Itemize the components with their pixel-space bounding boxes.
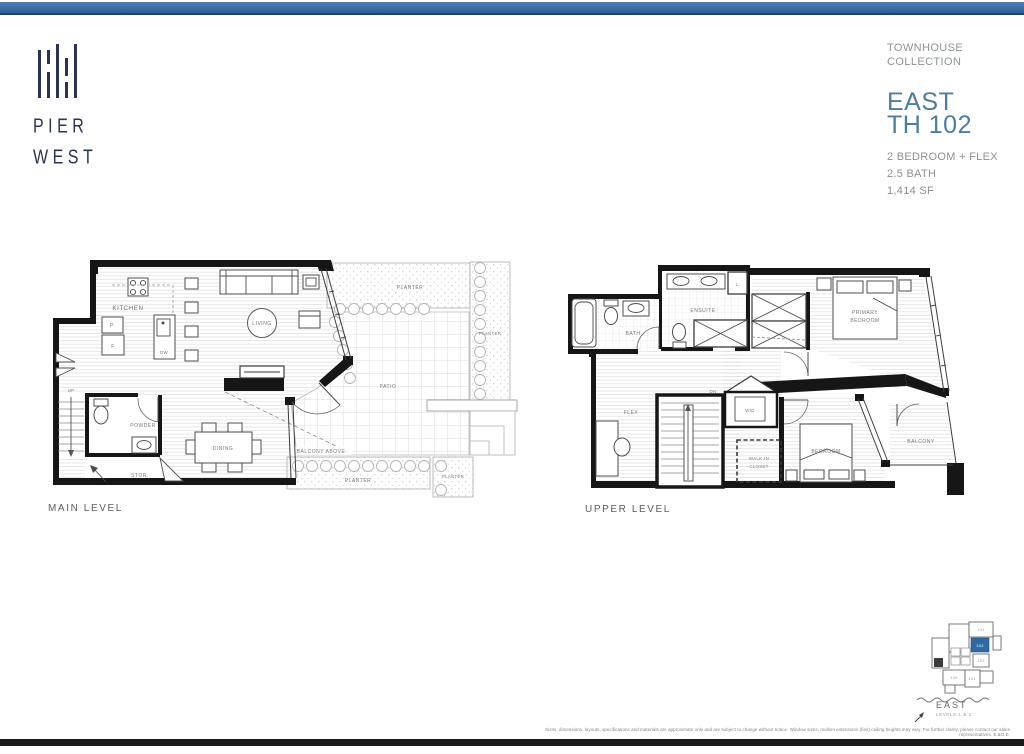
label-planter-right: PLANTER xyxy=(479,331,501,336)
label-dw: DW xyxy=(160,350,168,355)
label-balcony: BALCONY xyxy=(907,439,935,445)
north-arrow-icon xyxy=(915,712,924,722)
label-living: LIVING xyxy=(252,321,271,327)
label-bath: BATH xyxy=(626,331,641,337)
label-dn: DN xyxy=(710,389,717,394)
logo-text-pier: PIER xyxy=(33,116,88,139)
label-primary-line1: PRIMARY xyxy=(852,310,878,316)
plan-specs: 2 BEDROOM + FLEX 2.5 BATH 1,414 SF xyxy=(887,149,1017,200)
label-up: UP xyxy=(68,388,75,393)
label-kitchen: KITCHEN xyxy=(112,306,143,312)
collection-line2: COLLECTION xyxy=(887,55,1017,69)
logo-text-west: WEST xyxy=(33,147,97,170)
label-wic-line1: WALK-IN xyxy=(749,456,769,461)
label-bedroom: BEDROOM xyxy=(811,449,840,455)
upper-level-floorplan: BATH ENSUITE L PRIMARY BEDROOM FLEX DN W… xyxy=(563,256,975,514)
label-stor: STOR. xyxy=(131,473,149,479)
label-patio: PATIO xyxy=(380,384,397,390)
label-wic-line2: CLOSET xyxy=(749,464,768,469)
label-pantry: P xyxy=(110,323,114,329)
keyplan-unit-102: 102 xyxy=(976,643,984,648)
collection-title: TOWNHOUSE COLLECTION xyxy=(887,41,1017,69)
spec-bath: 2.5 BATH xyxy=(887,166,1017,183)
plan-header: TOWNHOUSE COLLECTION EAST TH 102 2 BEDRO… xyxy=(887,41,1017,200)
plan-name-line2: TH 102 xyxy=(887,114,1017,137)
label-linen: L xyxy=(736,282,739,287)
label-primary-line2: BEDROOM xyxy=(850,318,879,324)
spec-bedrooms: 2 BEDROOM + FLEX xyxy=(887,149,1017,166)
label-planter-bottom-right: PLANTER xyxy=(442,474,464,479)
main-level-title: MAIN LEVEL xyxy=(48,503,123,514)
keyplan-levels: LEVELS 1 & 2 xyxy=(936,712,972,717)
upper-level-title: UPPER LEVEL xyxy=(585,504,671,515)
label-fridge: F xyxy=(111,344,115,350)
spec-area: 1,414 SF xyxy=(887,183,1017,200)
keyplan-unit-104: 104 xyxy=(968,676,976,681)
keyplan-unit-103: 103 xyxy=(977,658,985,663)
label-planter-top: PLANTER xyxy=(397,285,424,291)
keyplan-unit-101: 101 xyxy=(977,627,985,632)
label-wd: W/D xyxy=(745,408,754,413)
keyplan-direction: EAST xyxy=(936,700,968,710)
main-level-floorplan: KITCHEN P F DW LIVING UP POWDER STOR. DI… xyxy=(44,256,536,520)
disclaimer-text: Sizes, dimensions, layouts, specificatio… xyxy=(518,727,1010,737)
keyplan: 101 102 103 105 104 xyxy=(905,616,1017,738)
label-powder: POWDER xyxy=(130,423,156,429)
top-accent-bar xyxy=(0,2,1024,15)
floorplan-page: PIER WEST TOWNHOUSE COLLECTION EAST TH 1… xyxy=(0,0,1024,754)
label-balcony-above: BALCONY ABOVE xyxy=(297,449,346,455)
label-dining: DINING xyxy=(213,446,234,452)
keyplan-unit-105: 105 xyxy=(950,675,958,680)
label-flex: FLEX xyxy=(624,410,639,416)
label-planter-bottom: PLANTER xyxy=(345,478,372,484)
label-ensuite: ENSUITE xyxy=(690,308,715,314)
plan-name: EAST TH 102 xyxy=(887,91,1017,137)
logo-mark-icon xyxy=(37,42,81,102)
bottom-edge-bar xyxy=(0,739,1024,746)
collection-line1: TOWNHOUSE xyxy=(887,41,1017,55)
